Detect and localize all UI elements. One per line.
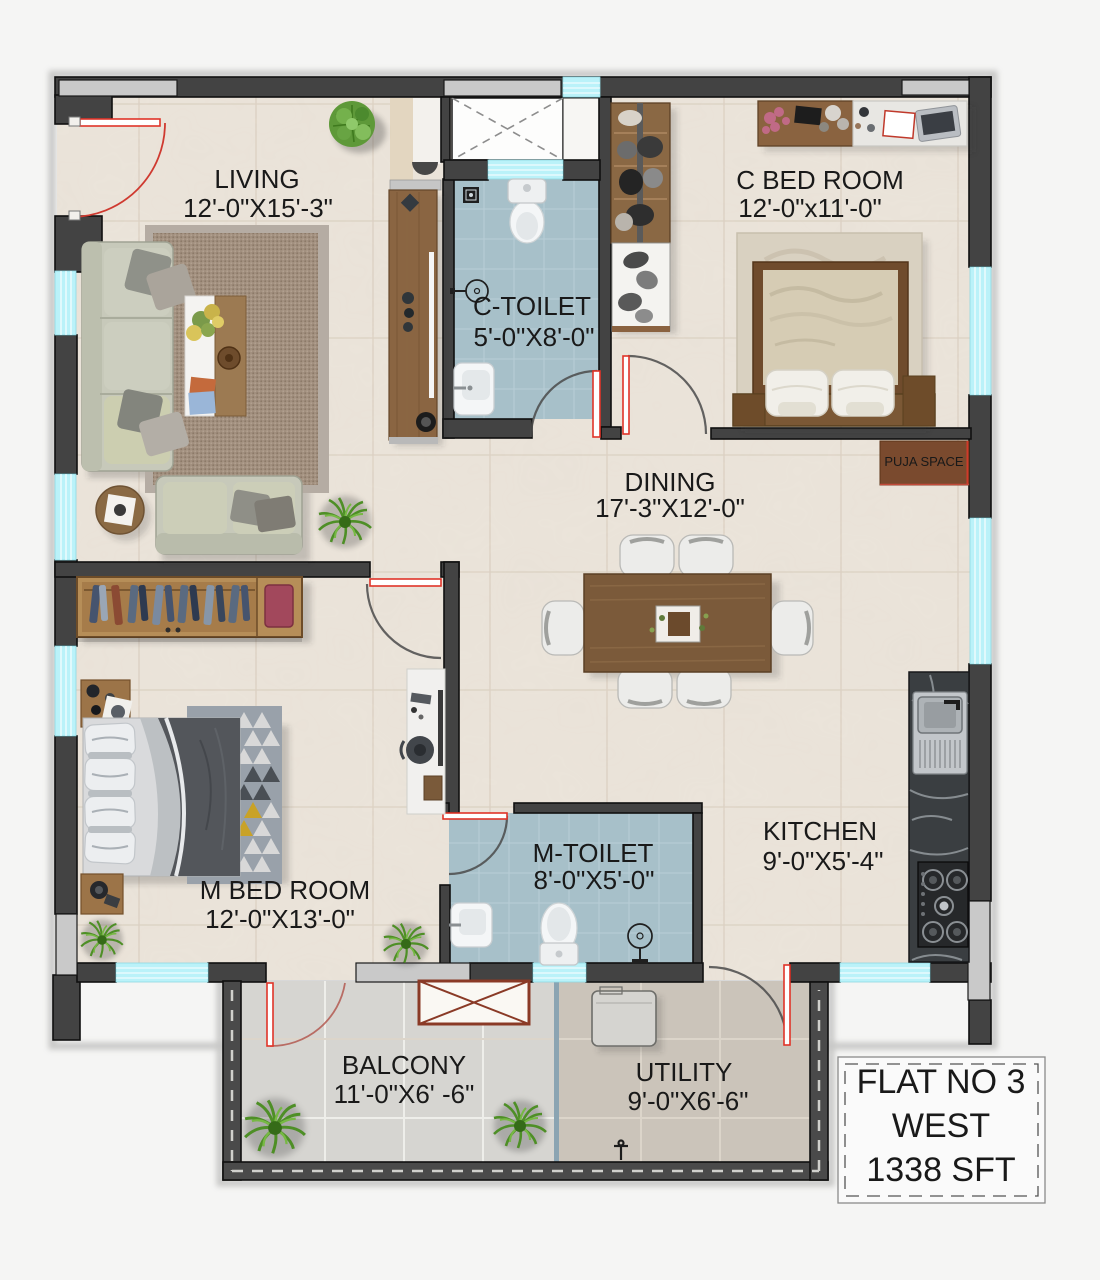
svg-text:FLAT NO 3: FLAT NO 3 <box>857 1063 1026 1101</box>
svg-text:9'-0"X5'-4": 9'-0"X5'-4" <box>763 846 884 876</box>
svg-text:WEST: WEST <box>892 1107 990 1145</box>
svg-text:5'-0"X8'-0": 5'-0"X8'-0" <box>474 322 595 352</box>
svg-text:BALCONY: BALCONY <box>342 1050 466 1080</box>
svg-text:C BED ROOM: C BED ROOM <box>736 165 904 195</box>
svg-text:12'-0"x11'-0": 12'-0"x11'-0" <box>738 193 882 223</box>
svg-text:UTILITY: UTILITY <box>636 1057 733 1087</box>
svg-text:M BED ROOM: M BED ROOM <box>200 875 370 905</box>
svg-text:11'-0"X6' -6": 11'-0"X6' -6" <box>334 1079 475 1109</box>
svg-text:12'-0"X13'-0": 12'-0"X13'-0" <box>205 904 355 934</box>
svg-text:8'-0"X5'-0": 8'-0"X5'-0" <box>534 865 655 895</box>
svg-text:LIVING: LIVING <box>214 164 299 194</box>
svg-text:KITCHEN: KITCHEN <box>763 816 877 846</box>
svg-text:M-TOILET: M-TOILET <box>533 838 654 868</box>
svg-text:9'-0"X6'-6": 9'-0"X6'-6" <box>628 1086 749 1116</box>
svg-text:12'-0"X15'-3": 12'-0"X15'-3" <box>183 193 333 223</box>
svg-text:PUJA SPACE: PUJA SPACE <box>884 454 964 469</box>
svg-text:C-TOILET: C-TOILET <box>473 291 591 321</box>
svg-text:17'-3"X12'-0": 17'-3"X12'-0" <box>595 493 745 523</box>
svg-text:1338 SFT: 1338 SFT <box>866 1151 1015 1189</box>
